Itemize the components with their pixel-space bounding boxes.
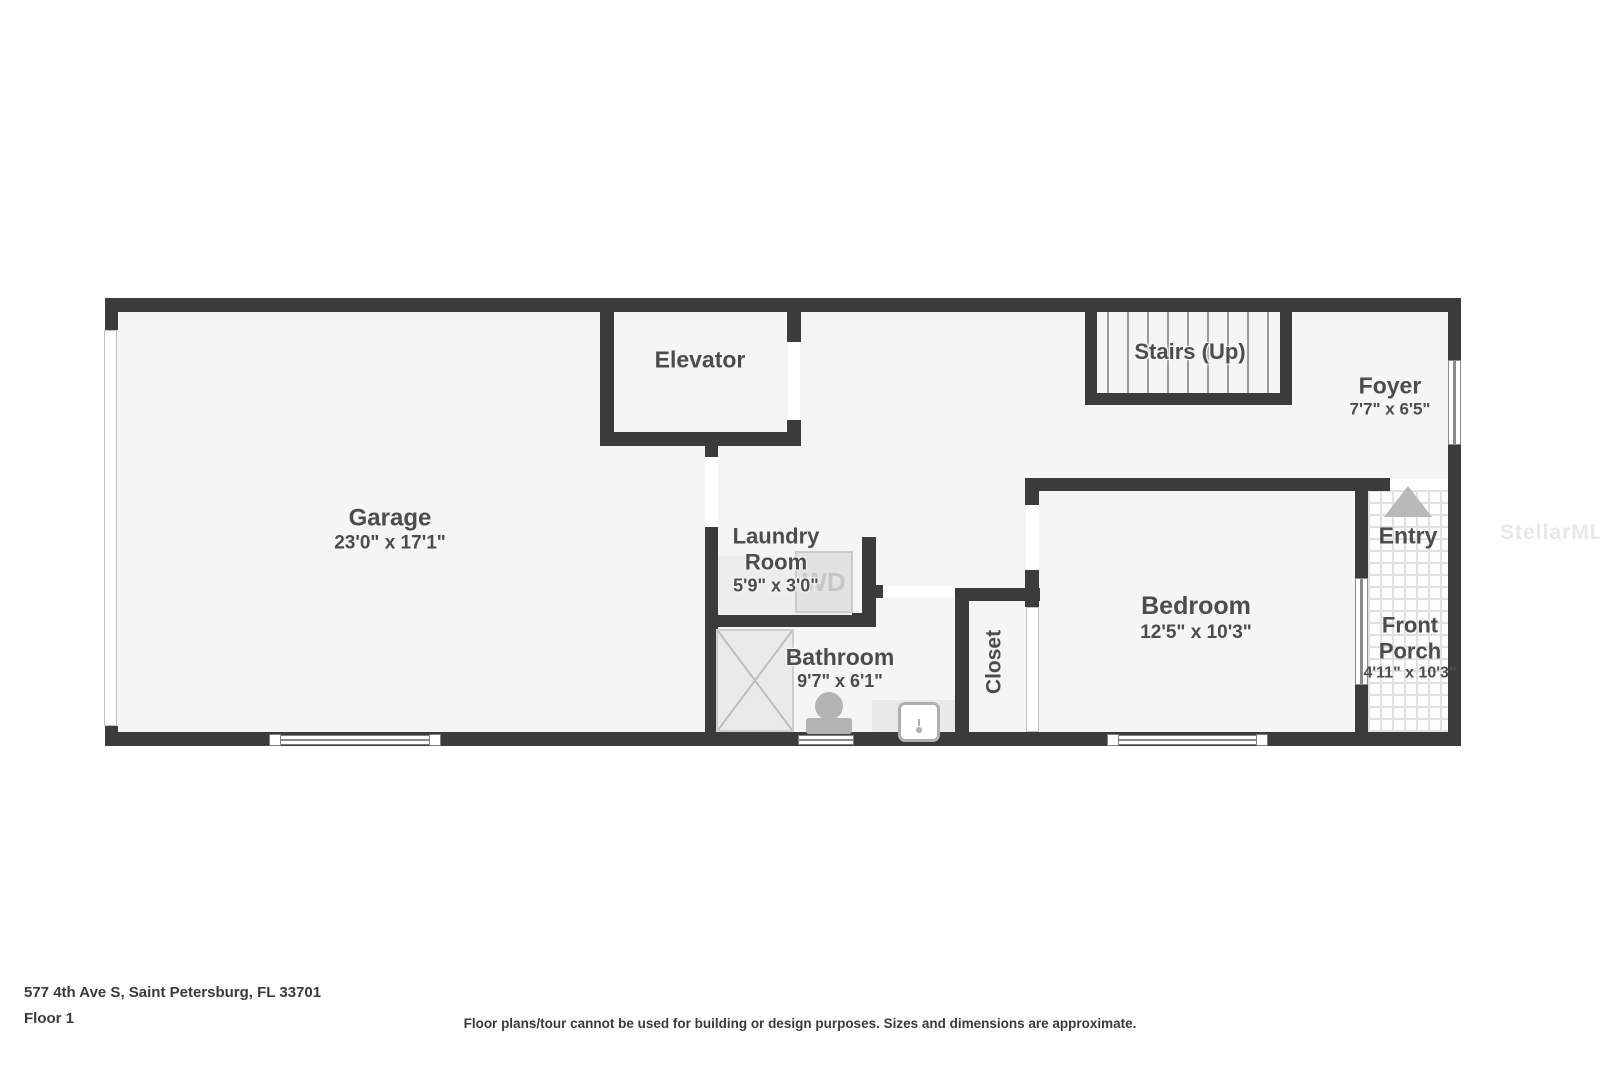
closet-label: Closet bbox=[983, 630, 1008, 694]
garage-hallway-wall-upper bbox=[705, 446, 718, 457]
foyer-window bbox=[1448, 360, 1461, 445]
floor-plan-canvas: WD Garage 23'0" x 17'1" Elevator Laundry… bbox=[0, 0, 1600, 1066]
stairs-wall-left bbox=[1085, 312, 1097, 405]
bedroom-door bbox=[1026, 505, 1039, 570]
stellar-mls-watermark: StellarMLS bbox=[1500, 521, 1600, 545]
entry-name: Entry bbox=[1379, 522, 1438, 549]
bathroom-dims: 9'7" x 6'1" bbox=[786, 671, 895, 692]
elevator-label: Elevator bbox=[655, 346, 746, 373]
bathroom-window bbox=[798, 735, 854, 745]
disclaimer-text: Floor plans/tour cannot be used for buil… bbox=[464, 1016, 1137, 1031]
elevator-wall-left bbox=[600, 312, 614, 446]
foyer-dims: 7'7" x 6'5" bbox=[1350, 400, 1431, 420]
stairs-label: Stairs (Up) bbox=[1134, 339, 1245, 365]
bathroom-name: Bathroom bbox=[786, 644, 895, 671]
laundry-label: Laundry Room 5'9" x 3'0" bbox=[733, 523, 820, 596]
garage-dims: 23'0" x 17'1" bbox=[334, 533, 446, 555]
garage-window bbox=[270, 735, 440, 745]
bathroom-label: Bathroom 9'7" x 6'1" bbox=[786, 644, 895, 692]
laundry-wall-right bbox=[862, 537, 876, 623]
front-porch-dims: 4'11" x 10'3" bbox=[1363, 665, 1456, 684]
wall-top bbox=[105, 298, 1461, 312]
sink-drain-dot bbox=[916, 727, 922, 733]
bedroom-window bbox=[1108, 735, 1267, 745]
garage-name: Garage bbox=[334, 505, 446, 533]
laundry-name-line1: Laundry bbox=[733, 523, 820, 549]
foyer-label: Foyer 7'7" x 6'5" bbox=[1350, 372, 1431, 419]
elevator-wall-bottom bbox=[600, 432, 801, 446]
toilet-icon bbox=[815, 692, 843, 720]
wall-left-lower bbox=[105, 726, 118, 746]
elevator-name: Elevator bbox=[655, 346, 746, 373]
garage-hallway-door bbox=[705, 457, 718, 527]
entry-label: Entry bbox=[1379, 522, 1438, 549]
bathroom-door bbox=[883, 586, 955, 597]
laundry-dims: 5'9" x 3'0" bbox=[733, 575, 820, 596]
shower bbox=[716, 629, 794, 732]
bedroom-wall-right-lower bbox=[1355, 685, 1368, 732]
bedroom-name: Bedroom bbox=[1140, 592, 1252, 622]
toilet-base bbox=[806, 718, 852, 734]
stairs-wall-bottom bbox=[1085, 393, 1292, 405]
front-porch-label: Front Porch 4'11" x 10'3" bbox=[1363, 613, 1456, 684]
wall-right-upper bbox=[1448, 298, 1461, 360]
closet-door bbox=[1026, 607, 1039, 732]
bedroom-label: Bedroom 12'5" x 10'3" bbox=[1140, 592, 1252, 644]
address-text: 577 4th Ave S, Saint Petersburg, FL 3370… bbox=[24, 984, 321, 1001]
entry-arrow-icon bbox=[1384, 486, 1432, 517]
hallway-bathroom-wall bbox=[862, 585, 883, 598]
shower-x-icon bbox=[718, 631, 792, 730]
stairs-name: Stairs (Up) bbox=[1134, 339, 1245, 365]
wall-left-upper bbox=[105, 298, 118, 330]
closet-wall-left bbox=[955, 588, 969, 732]
foyer-name: Foyer bbox=[1350, 372, 1431, 399]
front-porch-name-line2: Porch bbox=[1363, 639, 1456, 665]
stairs-wall-right bbox=[1280, 312, 1292, 405]
floor-label-text: Floor 1 bbox=[24, 1010, 74, 1027]
sink-icon bbox=[898, 702, 940, 742]
laundry-wall-bottom bbox=[705, 613, 876, 627]
bedroom-dims: 12'5" x 10'3" bbox=[1140, 622, 1252, 644]
elevator-door bbox=[788, 342, 800, 420]
bedroom-wall-left-mid bbox=[1025, 570, 1039, 607]
laundry-name-line2: Room bbox=[733, 549, 820, 575]
front-porch-name-line1: Front bbox=[1363, 613, 1456, 639]
bedroom-wall-top bbox=[1025, 478, 1368, 491]
wall-right-lower bbox=[1448, 445, 1461, 746]
bedroom-wall-right-upper bbox=[1355, 478, 1368, 578]
elevator-wall-right-upper bbox=[787, 312, 801, 342]
garage-door-opening bbox=[104, 330, 117, 726]
garage-label: Garage 23'0" x 17'1" bbox=[334, 505, 446, 556]
closet-name: Closet bbox=[983, 630, 1008, 694]
sink-faucet-line bbox=[918, 719, 920, 726]
